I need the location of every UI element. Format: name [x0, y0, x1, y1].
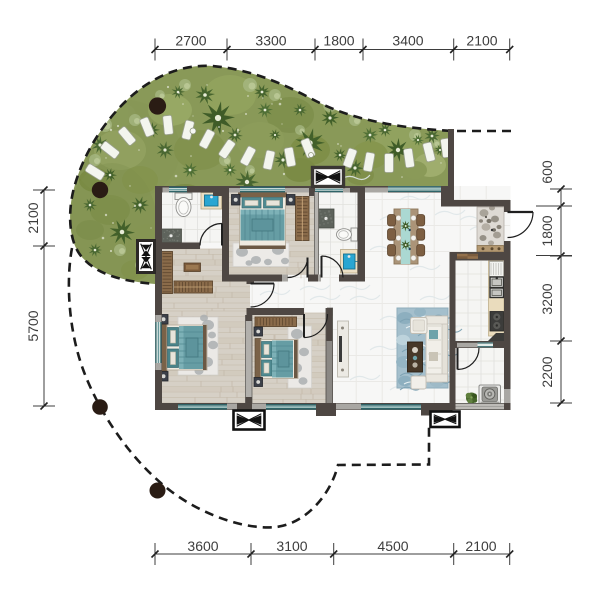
svg-text:3100: 3100 — [276, 538, 307, 554]
svg-text:5700: 5700 — [25, 310, 41, 341]
svg-text:3400: 3400 — [392, 33, 423, 49]
svg-text:1800: 1800 — [323, 33, 354, 49]
svg-text:3300: 3300 — [255, 33, 286, 49]
svg-text:1800: 1800 — [539, 215, 555, 246]
svg-text:3600: 3600 — [187, 538, 218, 554]
svg-text:2700: 2700 — [175, 33, 206, 49]
svg-text:2200: 2200 — [539, 356, 555, 387]
svg-text:4500: 4500 — [377, 538, 408, 554]
svg-text:2100: 2100 — [25, 202, 41, 233]
svg-text:2100: 2100 — [466, 33, 497, 49]
svg-text:2100: 2100 — [465, 538, 496, 554]
svg-text:3200: 3200 — [539, 283, 555, 314]
svg-text:600: 600 — [539, 160, 555, 184]
